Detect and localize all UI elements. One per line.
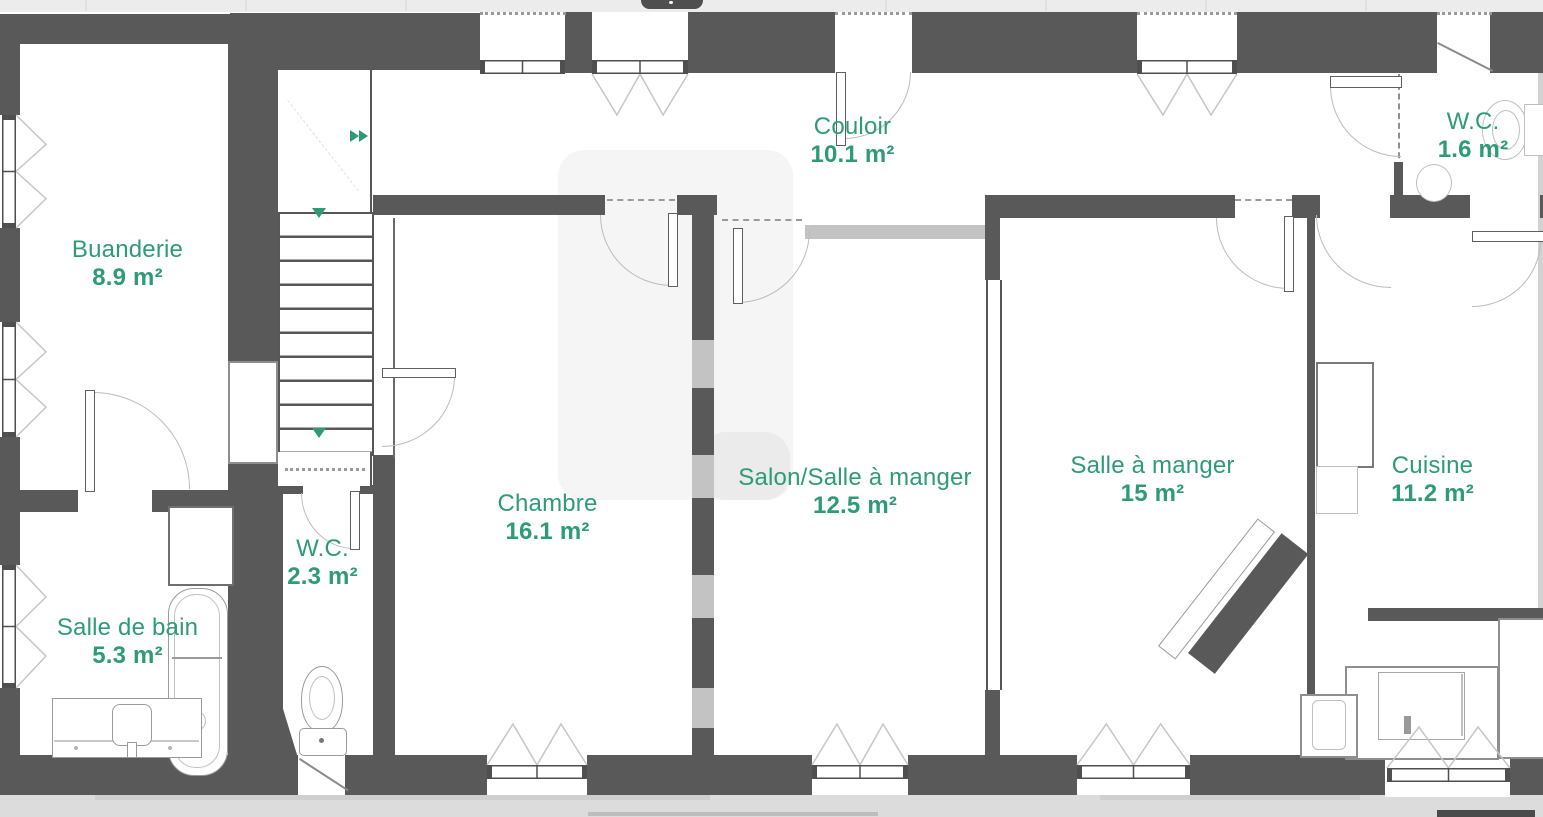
casement-window-icon bbox=[592, 60, 688, 118]
room-name: W.C. bbox=[265, 535, 380, 563]
room-label-chambre: Chambre 16.1 m² bbox=[435, 490, 660, 547]
room-area: 12.5 m² bbox=[700, 492, 1010, 520]
wall-light bbox=[805, 225, 985, 239]
stairs-down-arrow-icon bbox=[312, 208, 326, 218]
wall bbox=[345, 755, 487, 795]
casement-window-icon bbox=[480, 60, 565, 74]
wall bbox=[985, 195, 1235, 218]
wall bbox=[230, 13, 483, 70]
casement-window-icon bbox=[487, 721, 587, 779]
opening-dotted bbox=[1437, 12, 1492, 15]
wall bbox=[0, 14, 20, 115]
wall-light bbox=[692, 340, 714, 388]
room-label-salle-a-manger: Salle à manger 15 m² bbox=[1040, 452, 1265, 509]
room-name: Couloir bbox=[745, 113, 960, 141]
dishwasher-inner bbox=[1312, 700, 1346, 750]
door-leaf bbox=[1284, 216, 1294, 292]
wall bbox=[1510, 755, 1543, 795]
bathroom-closet bbox=[168, 506, 234, 586]
shadow bbox=[95, 795, 710, 800]
room-area: 11.2 m² bbox=[1335, 480, 1530, 508]
seam bbox=[85, 0, 87, 11]
room-area: 15 m² bbox=[1040, 480, 1265, 508]
room-label-salon: Salon/Salle à manger 12.5 m² bbox=[700, 464, 1010, 521]
door-leaf bbox=[733, 228, 743, 304]
wall bbox=[1307, 218, 1315, 755]
door-leaf bbox=[382, 368, 456, 378]
casement-window-icon bbox=[1137, 60, 1237, 118]
wall bbox=[985, 195, 1000, 280]
seam bbox=[1365, 0, 1367, 11]
faucet-icon bbox=[127, 742, 137, 758]
vanity-dot bbox=[168, 746, 172, 750]
room-area: 2.3 m² bbox=[265, 563, 380, 591]
room-area: 16.1 m² bbox=[435, 518, 660, 546]
casement-window-icon bbox=[1387, 724, 1510, 782]
opening-dashed bbox=[607, 199, 675, 201]
wall bbox=[1190, 755, 1387, 795]
opening-dotted bbox=[1137, 12, 1237, 15]
door-leaf bbox=[1330, 76, 1402, 88]
shadow bbox=[1100, 795, 1360, 800]
wall bbox=[677, 195, 717, 215]
room-name: W.C. bbox=[1408, 108, 1538, 136]
stairs bbox=[278, 212, 374, 456]
room-area: 8.9 m² bbox=[20, 264, 235, 292]
seam bbox=[245, 0, 247, 11]
door-recess bbox=[835, 12, 912, 73]
wall bbox=[0, 14, 232, 44]
wall bbox=[228, 460, 283, 505]
room-area: 1.6 m² bbox=[1408, 136, 1538, 164]
wall bbox=[1237, 12, 1437, 73]
washbasin-icon bbox=[1416, 164, 1452, 202]
toilet-button bbox=[319, 738, 324, 743]
pill-dot-icon bbox=[669, 1, 673, 4]
wall bbox=[1490, 12, 1543, 73]
opening-dashed bbox=[722, 219, 802, 221]
casement-window-icon bbox=[2, 565, 52, 688]
seam bbox=[1205, 0, 1207, 11]
wall bbox=[0, 755, 298, 795]
under-stairs-cupboard bbox=[228, 361, 278, 464]
wall bbox=[563, 12, 593, 73]
wall bbox=[908, 755, 1077, 795]
wall bbox=[20, 490, 78, 512]
room-name: Cuisine bbox=[1335, 452, 1530, 480]
room-label-wc-haut: W.C. 1.6 m² bbox=[1408, 108, 1538, 165]
room-area: 10.1 m² bbox=[745, 141, 960, 169]
room-name: Salon/Salle à manger bbox=[700, 464, 1010, 492]
toilet-bowl-inner bbox=[309, 676, 335, 720]
room-label-wc-bas: W.C. 2.3 m² bbox=[265, 535, 380, 592]
door-leaf bbox=[1472, 231, 1543, 242]
door-leaf bbox=[85, 390, 95, 492]
casement-window-icon bbox=[2, 322, 52, 437]
wall bbox=[985, 690, 1000, 755]
room-name: Salle à manger bbox=[1040, 452, 1265, 480]
wall bbox=[587, 755, 812, 795]
wall bbox=[373, 195, 605, 215]
sink-icon bbox=[112, 704, 152, 746]
wall-light bbox=[692, 688, 714, 728]
seam bbox=[1045, 0, 1047, 11]
room-label-cuisine: Cuisine 11.2 m² bbox=[1335, 452, 1530, 509]
wall bbox=[373, 455, 395, 755]
room-name: Buanderie bbox=[20, 236, 235, 264]
stairs-direction-arrow-icon bbox=[359, 130, 368, 142]
casement-window-icon bbox=[2, 115, 52, 228]
opening-dotted bbox=[285, 468, 365, 471]
shadow bbox=[1437, 810, 1535, 817]
shadow bbox=[588, 812, 878, 816]
opening-dotted bbox=[480, 12, 566, 15]
vanity-dot bbox=[74, 746, 78, 750]
casement-window-icon bbox=[1077, 721, 1190, 779]
room-label-buanderie: Buanderie 8.9 m² bbox=[20, 236, 235, 293]
wall bbox=[283, 485, 303, 494]
floor-plan: Buanderie 8.9 m² Salle de bain 5.3 m² W.… bbox=[0, 0, 1543, 817]
wall bbox=[1394, 162, 1403, 196]
opening-dashed bbox=[1235, 199, 1292, 201]
seam bbox=[885, 0, 887, 11]
room-label-couloir: Couloir 10.1 m² bbox=[745, 113, 960, 170]
stairs-direction-arrow-icon bbox=[350, 130, 359, 142]
seam bbox=[405, 0, 407, 11]
opening-dotted bbox=[835, 12, 912, 15]
wall-light bbox=[692, 575, 714, 618]
door-leaf bbox=[668, 213, 678, 287]
casement-window-icon bbox=[812, 721, 908, 779]
stairs-down-arrow-icon bbox=[312, 428, 326, 438]
wall bbox=[688, 12, 835, 73]
wall bbox=[0, 437, 20, 565]
wall bbox=[912, 12, 1137, 73]
wall bbox=[360, 485, 373, 494]
room-name: Chambre bbox=[435, 490, 660, 518]
wall bbox=[0, 228, 20, 322]
